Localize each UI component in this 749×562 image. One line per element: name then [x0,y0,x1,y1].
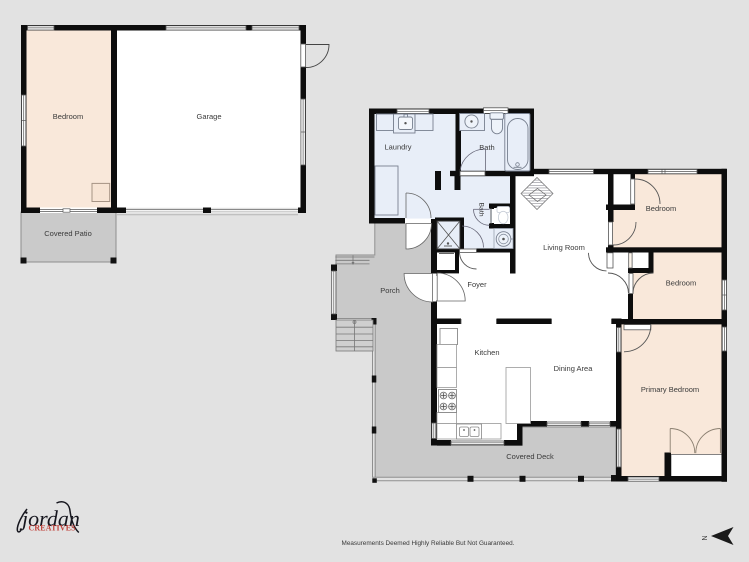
svg-text:Bedroom: Bedroom [53,112,83,121]
svg-text:CREATIVES: CREATIVES [29,524,77,533]
svg-text:Bedroom: Bedroom [666,279,696,288]
svg-text:Laundry: Laundry [384,143,411,152]
svg-text:Dining Area: Dining Area [554,364,594,373]
svg-text:Garage: Garage [196,112,221,121]
svg-text:Bath: Bath [479,143,494,152]
svg-text:Covered Deck: Covered Deck [506,452,554,461]
svg-text:Foyer: Foyer [467,280,487,289]
svg-text:Measurements Deemed Highly Rel: Measurements Deemed Highly Reliable But … [342,540,515,547]
svg-text:Kitchen: Kitchen [474,348,499,357]
svg-text:N: N [700,536,707,541]
svg-text:Covered Patio: Covered Patio [44,229,92,238]
svg-text:Porch: Porch [380,286,400,295]
svg-text:Living Room: Living Room [543,243,585,252]
svg-text:Primary Bedroom: Primary Bedroom [641,385,699,394]
svg-text:Bedroom: Bedroom [646,204,676,213]
